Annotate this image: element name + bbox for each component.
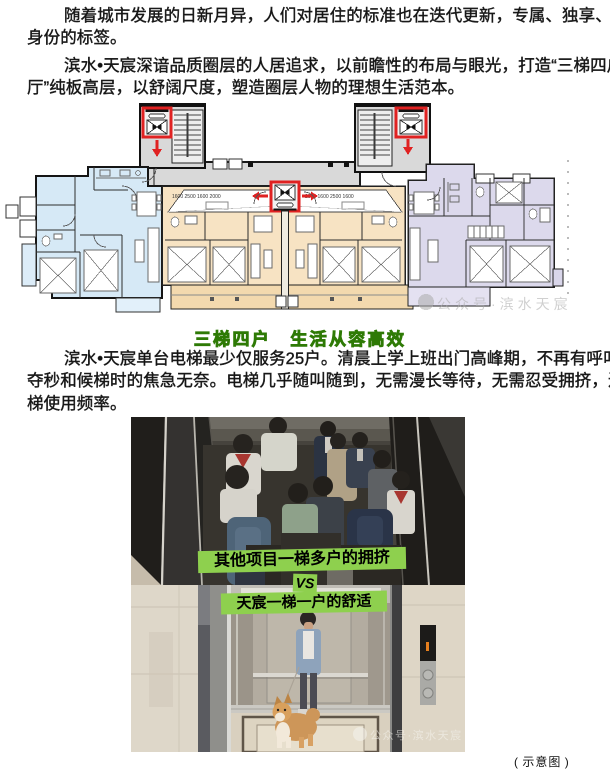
svg-text:1600 2500 1600 2000: 1600 2500 1600 2000 [172,194,221,200]
svg-text:公众号·滨水天宸: 公众号·滨水天宸 [437,296,572,312]
svg-text:公众号·滨水天宸: 公众号·滨水天宸 [370,728,463,742]
